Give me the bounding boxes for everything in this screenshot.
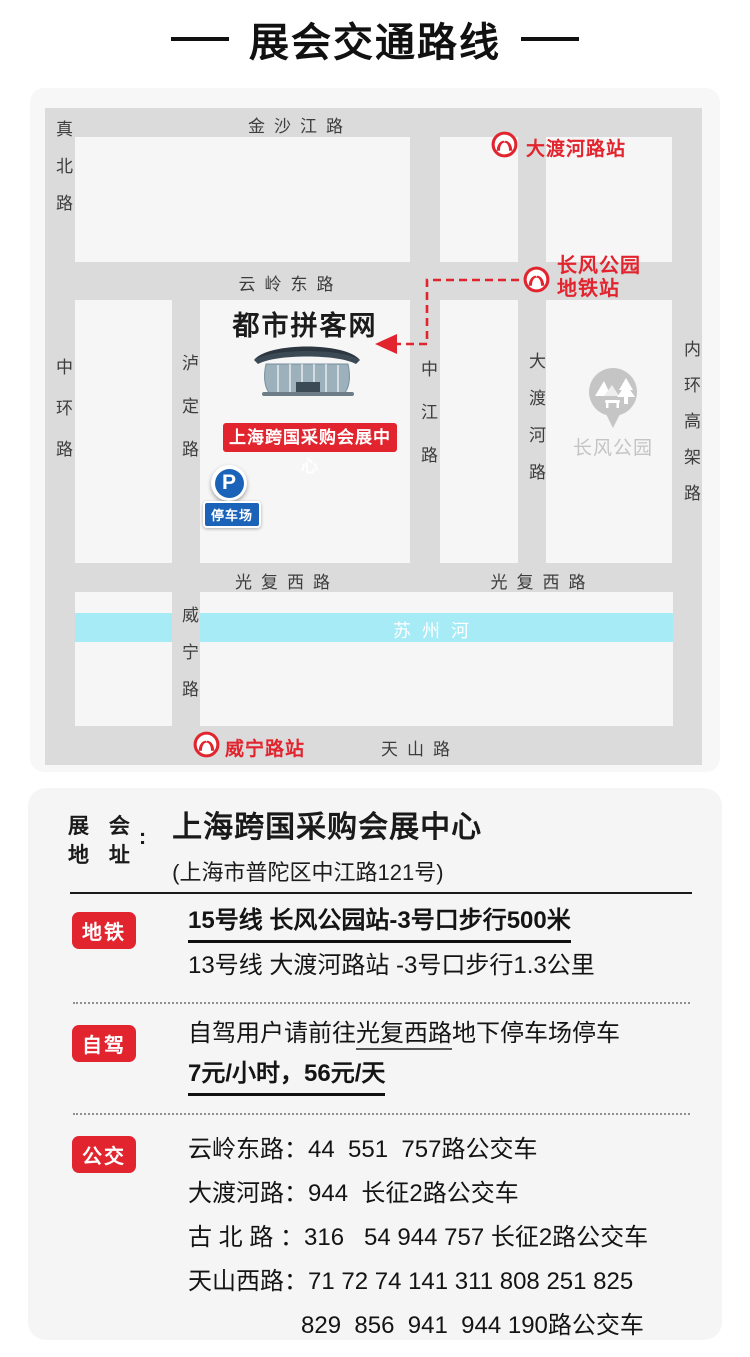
station-label-weining: 威宁路站 <box>225 734 305 761</box>
drive-price: 7元/小时，56元/天 <box>188 1057 385 1096</box>
bus-section: 公交 云岭东路：44 551 757路公交车 大渡河路：944 长征2路公交车 … <box>72 1128 648 1348</box>
parking-p-icon: P <box>211 465 247 501</box>
address-colon: : <box>139 824 146 887</box>
drive-line-1: 自驾用户请前往光复西路地下停车场停车 <box>188 1017 620 1051</box>
bus-line-tianshanxi: 天山西路：71 72 74 141 311 808 251 825 <box>188 1260 648 1304</box>
map-card: 苏州河 金沙江路 云岭东路 光复西路 光复西路 天山路 真北路 中环路 泸定路 … <box>30 88 720 772</box>
metro-logo-icon <box>193 731 220 758</box>
metro-logo-icon <box>491 131 518 158</box>
info-card: 展 会 地 址 : 上海跨国采购会展中心 (上海市普陀区中江路121号) 地铁 … <box>28 788 722 1340</box>
station-label-changfeng: 长风公园 地铁站 <box>557 255 641 301</box>
bus-body: 云岭东路：44 551 757路公交车 大渡河路：944 长征2路公交车 古 北… <box>188 1128 648 1348</box>
metro-body: 15号线 长风公园站-3号口步行500米 13号线 大渡河路站 -3号口步行1.… <box>188 904 595 983</box>
title-dash-left <box>171 37 229 41</box>
drive-line1-pre: 自驾用户请前往 <box>188 1020 356 1047</box>
divider-solid <box>70 892 692 894</box>
venue-building-image <box>248 338 366 404</box>
venue-name: 上海跨国采购会展中心 <box>172 802 482 846</box>
station-label-changfeng-line2: 地铁站 <box>557 278 641 301</box>
divider-dotted <box>73 1113 690 1115</box>
bus-line-yunling: 云岭东路：44 551 757路公交车 <box>188 1128 648 1172</box>
metro-section: 地铁 15号线 长风公园站-3号口步行500米 13号线 大渡河路站 -3号口步… <box>72 904 595 983</box>
park-pin-icon <box>585 366 641 432</box>
page-title: 展会交通路线 <box>249 10 501 68</box>
venue-detail-address: (上海市普陀区中江路121号) <box>172 855 482 887</box>
drive-section: 自驾 自驾用户请前往光复西路地下停车场停车 7元/小时，56元/天 <box>72 1017 620 1096</box>
bus-line-daduhe: 大渡河路：944 长征2路公交车 <box>188 1172 648 1216</box>
parking-label-badge: 停车场 <box>203 501 261 528</box>
parking-p-letter: P <box>215 469 244 498</box>
address-label-line1: 展 会 <box>68 812 137 841</box>
traffic-route-poster: 展会交通路线 苏州河 金沙江路 云岭东路 光复西路 光复西路 天山路 <box>0 0 750 1357</box>
drive-line1-road: 光复西路 <box>356 1020 452 1050</box>
address-label-line2: 地 址 <box>68 841 137 870</box>
park-label: 长风公园 <box>572 433 654 460</box>
bus-line-tianshanxi-cont: 829 856 941 944 190路公交车 <box>301 1304 648 1348</box>
route-dashed-line <box>395 280 519 344</box>
station-label-daduhe: 大渡河路站 <box>526 134 626 161</box>
station-label-changfeng-line1: 长风公园 <box>557 255 641 278</box>
venue-name-badge: 上海跨国采购会展中心 <box>223 423 397 452</box>
title-row: 展会交通路线 <box>0 0 750 78</box>
metro-logo-icon <box>523 266 550 293</box>
title-dash-right <box>521 37 579 41</box>
street-map: 苏州河 金沙江路 云岭东路 光复西路 光复西路 天山路 真北路 中环路 泸定路 … <box>45 108 702 765</box>
bus-line-gubei: 古 北 路 ：316 54 944 757 长征2路公交车 <box>188 1216 648 1260</box>
metro-line-15: 15号线 长风公园站-3号口步行500米 <box>188 904 571 943</box>
metro-line-13: 13号线 大渡河路站 -3号口步行1.3公里 <box>188 949 595 983</box>
address-label: 展 会 地 址 <box>68 812 137 887</box>
metro-badge: 地铁 <box>72 912 136 949</box>
address-row: 展 会 地 址 : 上海跨国采购会展中心 (上海市普陀区中江路121号) <box>68 802 482 887</box>
divider-dotted <box>73 1002 690 1004</box>
bus-badge: 公交 <box>72 1136 136 1173</box>
address-main: 上海跨国采购会展中心 (上海市普陀区中江路121号) <box>172 802 482 887</box>
drive-body: 自驾用户请前往光复西路地下停车场停车 7元/小时，56元/天 <box>188 1017 620 1096</box>
drive-line1-post: 地下停车场停车 <box>452 1020 620 1047</box>
drive-badge: 自驾 <box>72 1025 136 1062</box>
